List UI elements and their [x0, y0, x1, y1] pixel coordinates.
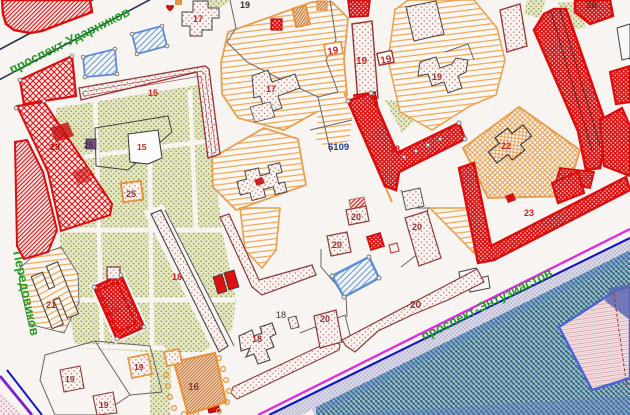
- svg-text:29: 29: [50, 142, 60, 152]
- svg-text:19: 19: [240, 0, 250, 10]
- svg-text:16: 16: [110, 307, 120, 317]
- svg-text:18: 18: [172, 272, 182, 282]
- svg-text:18: 18: [252, 334, 262, 344]
- svg-text:17: 17: [193, 14, 203, 24]
- svg-text:17: 17: [266, 84, 276, 94]
- svg-text:20: 20: [320, 314, 330, 324]
- svg-text:19: 19: [99, 400, 109, 410]
- svg-text:20: 20: [412, 222, 422, 232]
- svg-text:19: 19: [432, 72, 442, 82]
- svg-text:19: 19: [356, 56, 368, 67]
- svg-text:6109: 6109: [328, 142, 349, 153]
- svg-text:16: 16: [188, 382, 200, 393]
- svg-text:15: 15: [148, 88, 158, 98]
- svg-text:25: 25: [84, 141, 93, 150]
- svg-text:20: 20: [410, 300, 422, 311]
- svg-text:15: 15: [137, 142, 147, 152]
- svg-text:20: 20: [332, 240, 342, 250]
- svg-text:19: 19: [134, 362, 144, 372]
- svg-text:28: 28: [586, 0, 598, 11]
- svg-text:20: 20: [351, 212, 361, 222]
- svg-text:23: 23: [524, 208, 534, 218]
- svg-text:18: 18: [390, 144, 400, 154]
- svg-text:25: 25: [126, 189, 136, 199]
- svg-text:21: 21: [46, 300, 56, 310]
- svg-text:22: 22: [501, 141, 511, 151]
- svg-text:19: 19: [65, 374, 75, 384]
- svg-text:18: 18: [276, 310, 286, 320]
